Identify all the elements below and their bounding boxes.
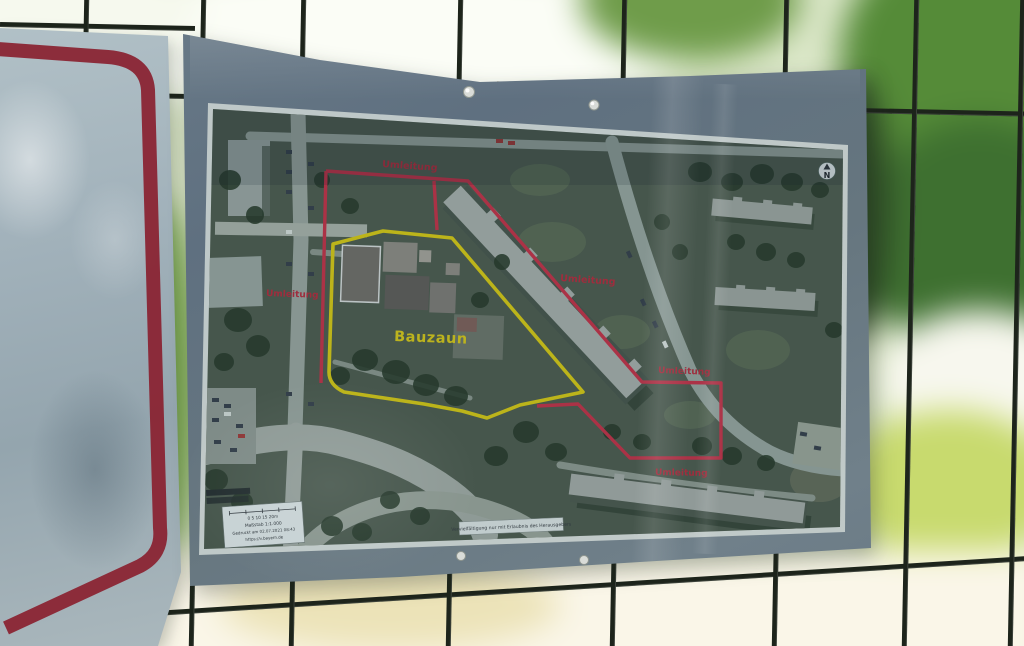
sheet-top-glare (190, 30, 860, 100)
photo-site-plan-on-fence: Umleitung Umleitung Umleitung Umleitung … (0, 0, 1024, 646)
wire-tie (497, 74, 514, 81)
laminated-map-sheet: Umleitung Umleitung Umleitung Umleitung … (0, 0, 1024, 646)
sheet-glare-soft (180, 380, 480, 590)
laminated-sheet-wrap: Umleitung Umleitung Umleitung Umleitung … (0, 0, 1024, 646)
